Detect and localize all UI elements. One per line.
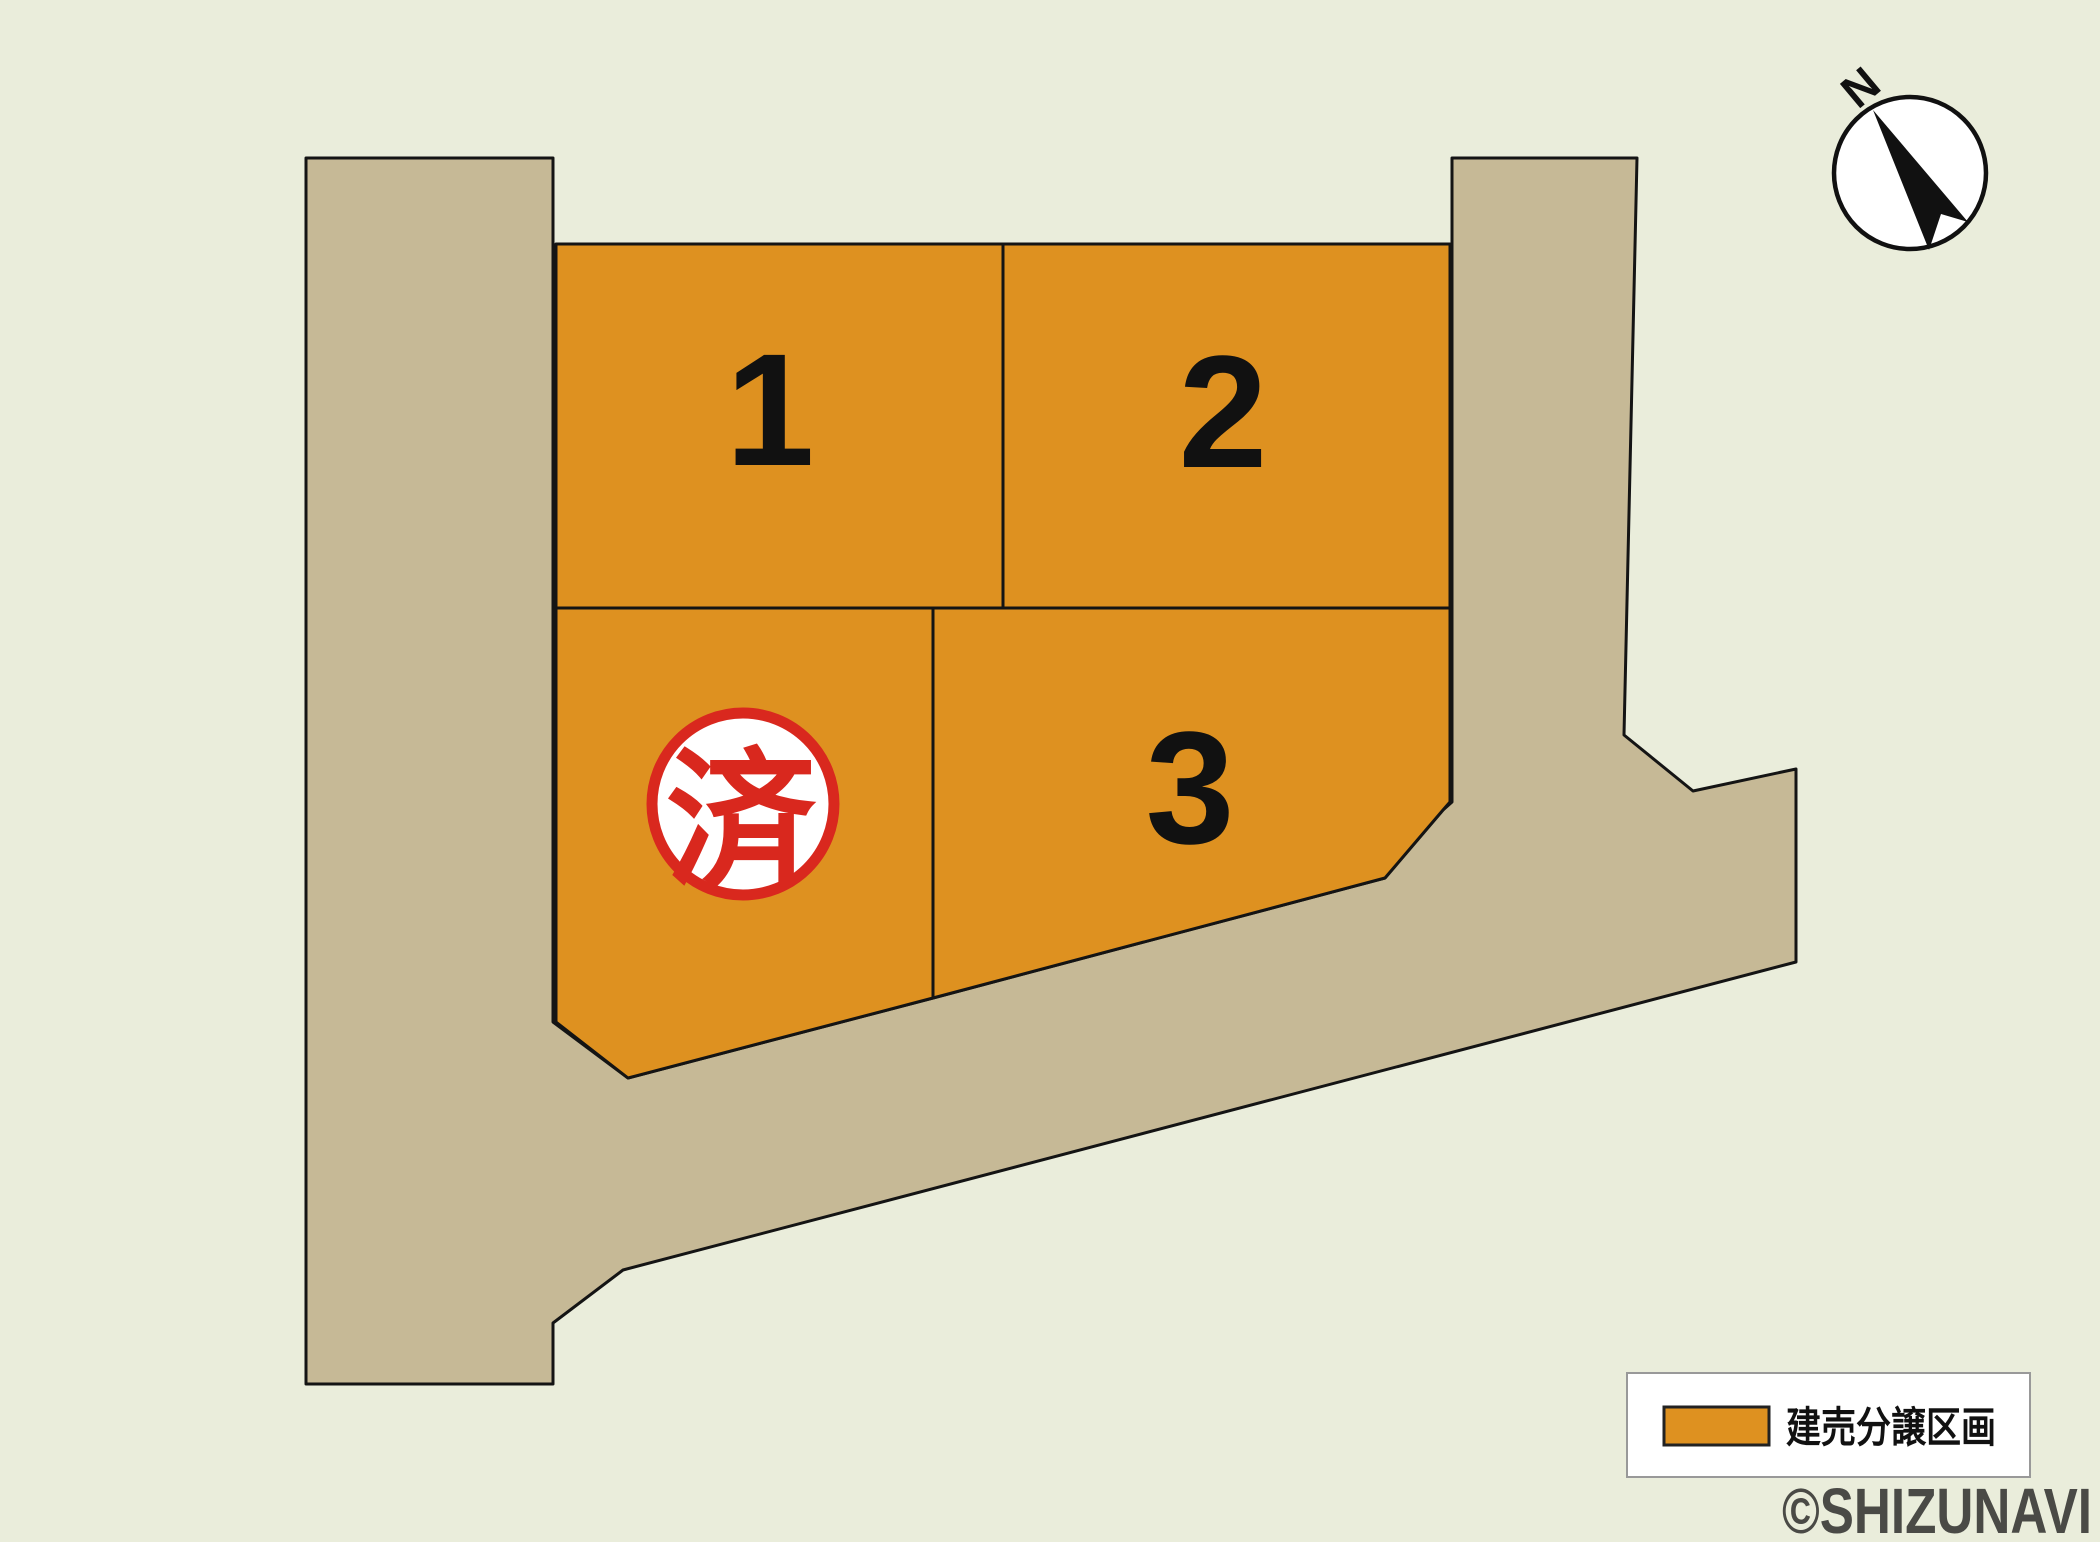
legend-swatch (1664, 1407, 1769, 1445)
subdivision-map: 1 2 3 済 N 建売分譲区画 ©SHIZUNAVI (0, 0, 2100, 1542)
plot-1-label: 1 (726, 320, 815, 499)
plot-2-label: 2 (1179, 322, 1268, 501)
legend-box: 建売分譲区画 (1627, 1373, 2030, 1477)
copyright-watermark-text: ©SHIZUNAVI (1782, 1475, 2092, 1542)
plot-map-canvas: 1 2 3 済 N 建売分譲区画 ©SHIZUNAVI (0, 0, 2100, 1542)
plot-3-label: 3 (1146, 698, 1235, 877)
legend-label: 建売分譲区画 (1786, 1404, 1996, 1451)
sold-stamp: 済 (652, 713, 834, 905)
sold-stamp-text: 済 (666, 737, 817, 905)
